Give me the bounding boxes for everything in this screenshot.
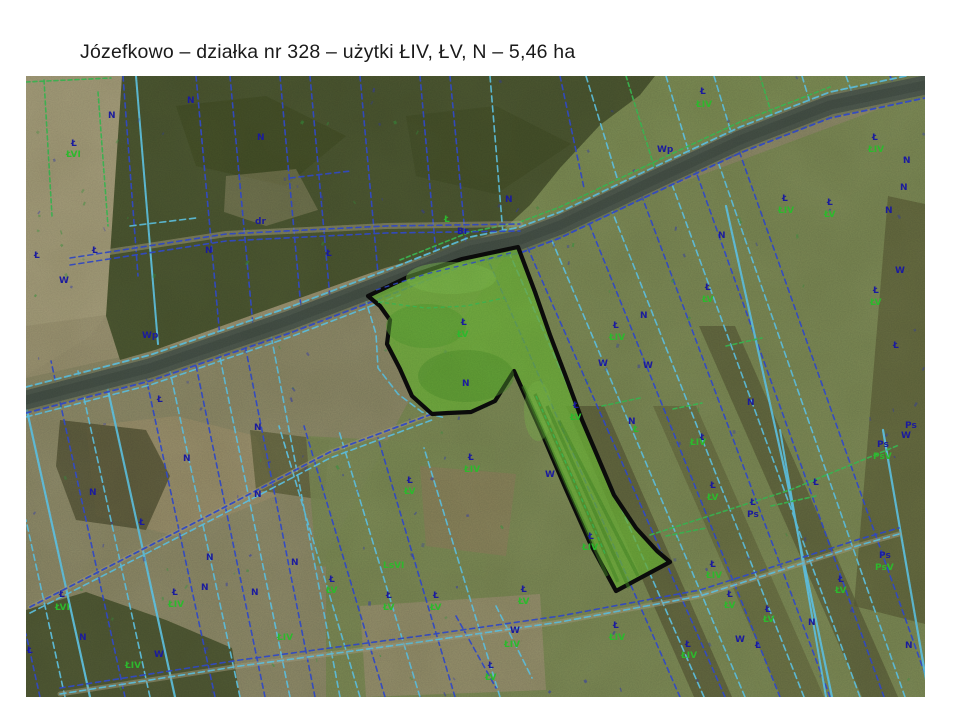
land-use-label: N bbox=[462, 379, 470, 389]
land-use-label: Ps bbox=[879, 551, 891, 561]
land-use-label: ŁIV bbox=[503, 640, 520, 650]
land-use-label: Ł bbox=[826, 198, 833, 208]
land-use-label: Ł bbox=[699, 87, 706, 97]
land-use-label: Ps bbox=[747, 510, 759, 520]
land-use-label: ŁIV bbox=[689, 438, 706, 448]
land-use-label: ŁVI bbox=[65, 150, 81, 160]
land-use-label: Ł bbox=[385, 591, 392, 601]
land-use-label: Wp bbox=[657, 145, 674, 155]
land-use-label: Ł bbox=[726, 590, 733, 600]
land-use-label: N bbox=[108, 111, 116, 121]
land-use-label: Ps bbox=[905, 421, 917, 431]
land-use-label: Ł bbox=[754, 641, 761, 651]
land-use-label: Ps bbox=[877, 440, 889, 450]
land-use-label: ŁV bbox=[762, 615, 775, 625]
land-use-label: N bbox=[505, 195, 513, 205]
land-use-label: N bbox=[900, 183, 908, 193]
land-use-label: ŁIV bbox=[463, 465, 480, 475]
land-use-label: Wp bbox=[142, 331, 159, 341]
land-use-label: ŁIV bbox=[680, 651, 697, 661]
land-use-label: N bbox=[183, 454, 191, 464]
land-use-label: ŁIV bbox=[695, 100, 712, 110]
land-use-label: Ł bbox=[764, 605, 771, 615]
land-use-label: W bbox=[901, 431, 911, 441]
land-use-label: PsV bbox=[875, 563, 894, 573]
land-use-label: Ł bbox=[432, 591, 439, 601]
land-use-label: ŁIV bbox=[276, 633, 293, 643]
land-use-label: Ł bbox=[520, 585, 527, 595]
land-use-label: Ł bbox=[460, 318, 467, 328]
land-use-label: Ł bbox=[138, 518, 145, 528]
land-use-label: ŁIV bbox=[608, 633, 625, 643]
land-use-label: W bbox=[545, 470, 555, 480]
land-use-label: PsV bbox=[873, 452, 892, 462]
land-use-label: N bbox=[254, 423, 262, 433]
land-use-label: W bbox=[895, 266, 905, 276]
land-use-label: ŁV bbox=[429, 603, 442, 613]
land-use-label: N bbox=[718, 231, 726, 241]
land-use-label: Ł bbox=[709, 481, 716, 491]
land-use-label: ŁIV bbox=[167, 600, 184, 610]
land-use-label: N bbox=[291, 558, 299, 568]
land-use-label: ŁV bbox=[869, 298, 882, 308]
land-use-label: Ł bbox=[781, 194, 788, 204]
land-use-label: Ł bbox=[91, 246, 98, 256]
photo-noise bbox=[26, 76, 925, 697]
land-use-label: ŁV bbox=[382, 603, 395, 613]
land-use-label: Ł bbox=[612, 321, 619, 331]
land-use-label: N bbox=[257, 133, 265, 143]
land-use-label: Ł bbox=[684, 640, 691, 650]
land-use-label: ŁV bbox=[569, 413, 582, 423]
land-use-label: N bbox=[747, 398, 755, 408]
land-use-label: Ł bbox=[632, 425, 639, 435]
land-use-label: ŁV bbox=[403, 487, 416, 497]
land-use-label: N bbox=[251, 588, 259, 598]
land-use-label: N bbox=[885, 206, 893, 216]
land-use-label: W bbox=[510, 626, 520, 636]
land-use-label: W bbox=[735, 635, 745, 645]
land-use-label: Ł bbox=[487, 661, 494, 671]
land-use-label: W bbox=[154, 650, 164, 660]
land-use-label: Ł bbox=[749, 498, 756, 508]
land-use-label: ŁIV bbox=[124, 661, 141, 671]
land-use-label: ŁV bbox=[517, 597, 530, 607]
land-use-label: ŁV bbox=[456, 330, 469, 340]
land-use-label: Ł bbox=[58, 590, 65, 600]
land-use-label: Ł bbox=[325, 249, 332, 259]
land-use-label: N bbox=[89, 488, 97, 498]
land-use-label: Ł bbox=[572, 401, 579, 411]
land-use-label: Ł bbox=[328, 575, 335, 585]
land-use-label: Ł bbox=[171, 588, 178, 598]
blotch-noise bbox=[26, 76, 925, 697]
land-use-label: N bbox=[206, 553, 214, 563]
land-use-label: ŁV bbox=[701, 295, 714, 305]
land-use-label: N bbox=[903, 156, 911, 166]
land-use-label: ŁIV bbox=[608, 333, 625, 343]
land-use-label: Ł bbox=[892, 341, 899, 351]
land-use-label: Ł bbox=[871, 133, 878, 143]
land-use-label: Ł bbox=[467, 453, 474, 463]
land-use-label: Ł bbox=[33, 251, 40, 261]
land-use-label: ŁIV bbox=[705, 571, 722, 581]
land-use-label: Ł bbox=[612, 621, 619, 631]
land-use-label: Ł bbox=[443, 215, 450, 225]
land-use-label: Ł bbox=[837, 575, 844, 585]
land-use-label: ŁV bbox=[723, 601, 736, 611]
land-use-label: ŁV bbox=[484, 673, 497, 683]
page-title: Józefkowo – działka nr 328 – użytki ŁIV,… bbox=[80, 40, 900, 64]
land-use-label: N bbox=[79, 633, 87, 643]
land-use-label: ŁIV bbox=[867, 145, 884, 155]
land-use-label: N bbox=[205, 246, 213, 256]
land-use-label: W bbox=[59, 276, 69, 286]
land-use-label: Ł bbox=[70, 139, 77, 149]
land-use-label: W bbox=[598, 359, 608, 369]
land-use-label: ŁIV bbox=[581, 543, 598, 553]
land-use-label: ŁV bbox=[325, 586, 338, 596]
aerial-map: NŁŁVINNŁŁWNŁdrŁBrNWpWpŁŁIVŁŁIVNNŁŁVŁŁIVN… bbox=[26, 76, 925, 697]
land-use-label: N bbox=[640, 311, 648, 321]
land-use-label: Ł bbox=[872, 286, 879, 296]
land-use-label: ŁIV bbox=[777, 206, 794, 216]
map-container: NŁŁVINNŁŁWNŁdrŁBrNWpWpŁŁIVŁŁIVNNŁŁVŁŁIVN… bbox=[26, 76, 925, 697]
land-use-label: Ł bbox=[156, 395, 163, 405]
land-use-label: N bbox=[905, 641, 913, 651]
land-use-label: ŁVI bbox=[54, 603, 70, 613]
land-use-label: N bbox=[808, 618, 816, 628]
land-use-label: Ł bbox=[406, 476, 413, 486]
land-use-label: Ł bbox=[812, 478, 819, 488]
land-use-label: N bbox=[254, 490, 262, 500]
land-use-label: N bbox=[187, 96, 195, 106]
land-use-label: Ł bbox=[26, 646, 33, 656]
land-use-label: Br bbox=[457, 227, 469, 237]
land-use-label: Ł bbox=[704, 283, 711, 293]
land-use-label: LsVI bbox=[383, 561, 404, 571]
land-use-label: Ł bbox=[587, 532, 594, 542]
land-use-label: W bbox=[643, 361, 653, 371]
land-use-label: ŁV bbox=[834, 586, 847, 596]
land-use-label: ŁV bbox=[706, 493, 719, 503]
land-use-label: N bbox=[201, 583, 209, 593]
land-use-label: ŁV bbox=[823, 210, 836, 220]
land-use-label: dr bbox=[255, 217, 266, 227]
land-use-label: Ł bbox=[709, 560, 716, 570]
